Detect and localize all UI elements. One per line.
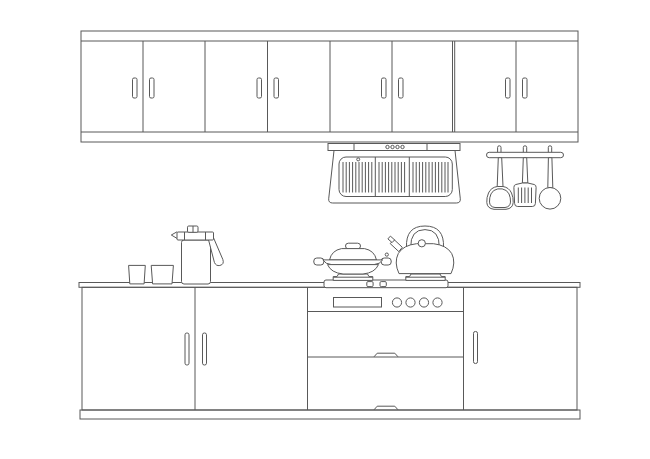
kettle-body bbox=[396, 244, 454, 274]
pitcher bbox=[171, 226, 223, 284]
line-art-root bbox=[79, 31, 580, 419]
door-handle bbox=[185, 333, 189, 365]
door-handle bbox=[474, 332, 478, 364]
base-cabinet-frame bbox=[82, 287, 577, 410]
door-handle bbox=[382, 78, 387, 98]
cup bbox=[129, 265, 146, 284]
hood-filter-fins bbox=[343, 162, 448, 193]
door-handle bbox=[150, 78, 155, 98]
upper-cabinets bbox=[81, 31, 578, 142]
door-handle bbox=[523, 78, 528, 98]
oven-knob bbox=[406, 298, 415, 307]
base-cabinets bbox=[80, 287, 580, 419]
door-handle bbox=[257, 78, 262, 98]
cup bbox=[151, 265, 173, 284]
wok-bowl bbox=[328, 265, 379, 274]
ladle bbox=[539, 158, 561, 209]
wok-spatula bbox=[487, 158, 513, 210]
wok-lid-knob bbox=[346, 243, 361, 249]
utensil-rack bbox=[487, 146, 564, 210]
cups bbox=[129, 265, 174, 284]
pitcher-spout bbox=[171, 232, 177, 239]
wok-rim bbox=[323, 260, 383, 265]
turner-handle bbox=[522, 158, 527, 183]
kettle bbox=[385, 226, 454, 274]
door-handle bbox=[399, 78, 404, 98]
ladle-handle bbox=[548, 158, 553, 188]
door-handle bbox=[506, 78, 511, 98]
wok-lid bbox=[330, 249, 377, 260]
door-handle bbox=[203, 333, 207, 365]
oven-knob bbox=[433, 298, 442, 307]
wok-handle-left bbox=[314, 258, 324, 265]
wok-spatula-handle bbox=[497, 158, 503, 187]
cooktop bbox=[324, 274, 448, 288]
kitchen-elevation-canvas bbox=[0, 0, 650, 459]
kettle-spout-dot bbox=[385, 253, 388, 256]
range-hood bbox=[328, 144, 460, 204]
kettle-spout-cap bbox=[388, 236, 395, 243]
pitcher-body bbox=[182, 240, 211, 284]
wok-handle-right bbox=[381, 258, 391, 265]
lidded-wok bbox=[314, 243, 391, 274]
slotted-turner bbox=[514, 158, 536, 207]
oven-range bbox=[308, 298, 464, 410]
oven-display bbox=[334, 298, 382, 308]
upper-cabinet-door-dividers bbox=[143, 41, 516, 132]
oven-knob bbox=[419, 298, 428, 307]
pitcher-lid bbox=[177, 232, 214, 240]
plinth bbox=[80, 410, 580, 419]
oven-drawer-pull bbox=[374, 353, 398, 357]
kitchen-elevation-drawing bbox=[0, 0, 650, 459]
door-handle bbox=[133, 78, 138, 98]
rack-rail bbox=[487, 152, 564, 157]
oven-drawer-pull bbox=[374, 406, 398, 410]
kettle-lid-knob bbox=[418, 240, 425, 247]
oven-knob bbox=[392, 298, 401, 307]
ladle-bowl bbox=[539, 188, 561, 210]
door-handle bbox=[274, 78, 279, 98]
